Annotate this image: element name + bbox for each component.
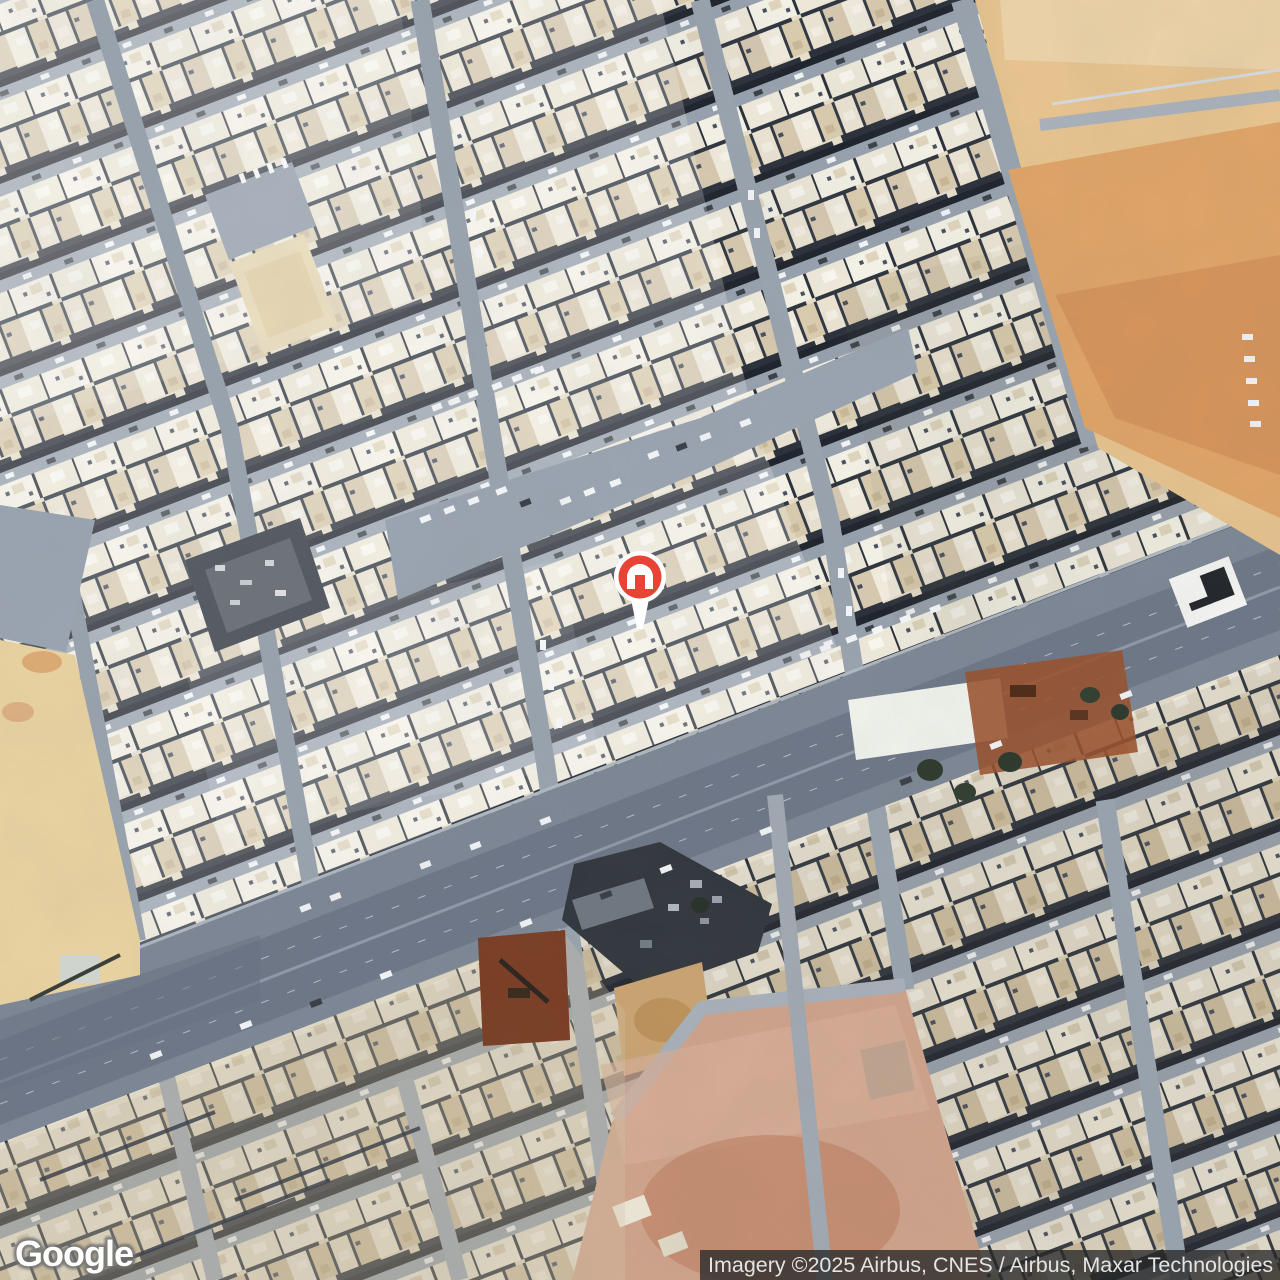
svg-text:Google: Google <box>15 1233 133 1274</box>
svg-text:Imagery ©2025 Airbus, CNES / A: Imagery ©2025 Airbus, CNES / Airbus, Max… <box>708 1253 1273 1277</box>
